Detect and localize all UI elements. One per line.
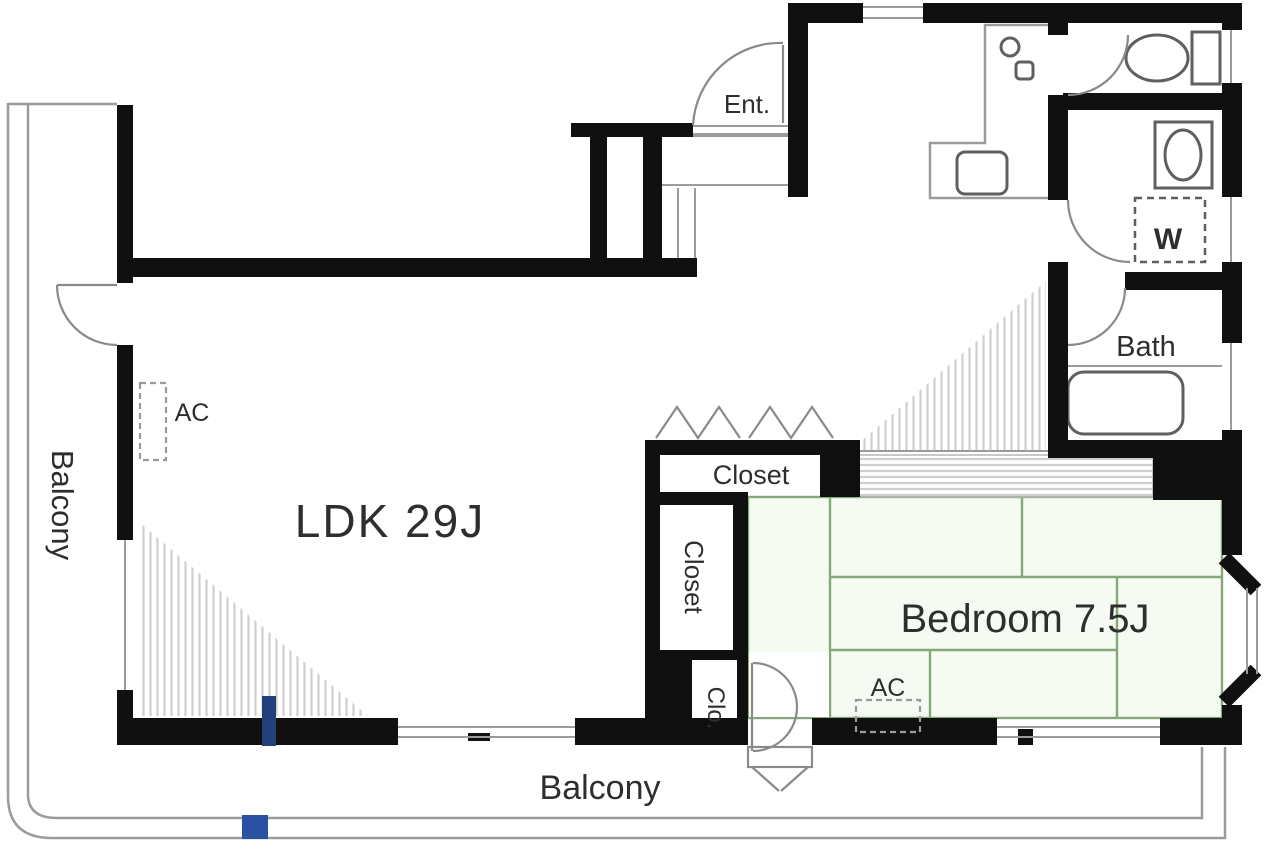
bedroom-label: Bedroom 7.5J	[900, 597, 1149, 641]
wall-segment	[1063, 93, 1222, 110]
wall-segment	[1125, 272, 1222, 290]
balcony-left-label: Balcony	[45, 450, 80, 561]
stove-burner-icon	[1016, 62, 1033, 79]
wall-segment	[117, 345, 133, 540]
wall-segment	[808, 3, 863, 23]
balcony-bottom-label: Balcony	[540, 769, 661, 807]
bathtub-icon	[1068, 372, 1183, 434]
toilet-room	[1126, 32, 1220, 84]
blue-square-marker	[242, 815, 268, 839]
floor-plan-drawing: LDK 29J Bedroom 7.5J Ent. W Bath Closet …	[0, 0, 1280, 849]
toilet-tank-icon	[1192, 32, 1220, 84]
wall-segment	[1222, 262, 1242, 343]
wall-segment	[1048, 3, 1068, 35]
closet-top-label: Closet	[713, 460, 790, 490]
wall-segment	[1048, 95, 1068, 200]
wall-segment	[1222, 83, 1242, 197]
wall-segment	[117, 718, 398, 745]
kitchen-sink-icon	[957, 152, 1007, 194]
toilet-bowl-icon	[1126, 35, 1188, 81]
doorway-patch	[749, 652, 829, 717]
wall-segment	[733, 492, 748, 660]
bath-label: Bath	[1116, 331, 1176, 363]
wall-segment	[643, 123, 693, 137]
ac-label-bedroom: AC	[871, 674, 906, 702]
ldk-label: LDK 29J	[295, 495, 485, 547]
wall-segment	[1153, 455, 1222, 500]
washer-label: W	[1154, 223, 1183, 256]
wall-segment	[645, 650, 748, 660]
ac-label-ldk: AC	[175, 399, 210, 427]
wall-segment	[645, 492, 660, 660]
wall-segment	[923, 3, 1242, 23]
floor-plan-page: LDK 29J Bedroom 7.5J Ent. W Bath Closet …	[0, 0, 1280, 849]
stove-burner-icon	[1001, 38, 1019, 56]
wall-segment	[1048, 262, 1068, 455]
blue-tick-marker	[262, 696, 276, 746]
wash-basin-icon	[1165, 130, 1201, 180]
wall-segment	[645, 492, 748, 505]
wall-segment	[820, 440, 860, 497]
wall-segment	[117, 105, 133, 283]
wall-segment	[643, 123, 662, 277]
wall-segment	[788, 3, 808, 197]
closet-small-label: Clo.	[702, 687, 729, 730]
entrance-label: Ent.	[724, 89, 770, 119]
wall-segment	[1222, 430, 1242, 555]
hatch-strip-above-bedroom	[858, 455, 1153, 497]
wall-segment	[133, 258, 697, 277]
closet-side-label: Closet	[679, 540, 709, 614]
wall-segment	[1160, 718, 1225, 745]
wall-segment	[1222, 3, 1242, 30]
wall-segment	[590, 123, 607, 277]
